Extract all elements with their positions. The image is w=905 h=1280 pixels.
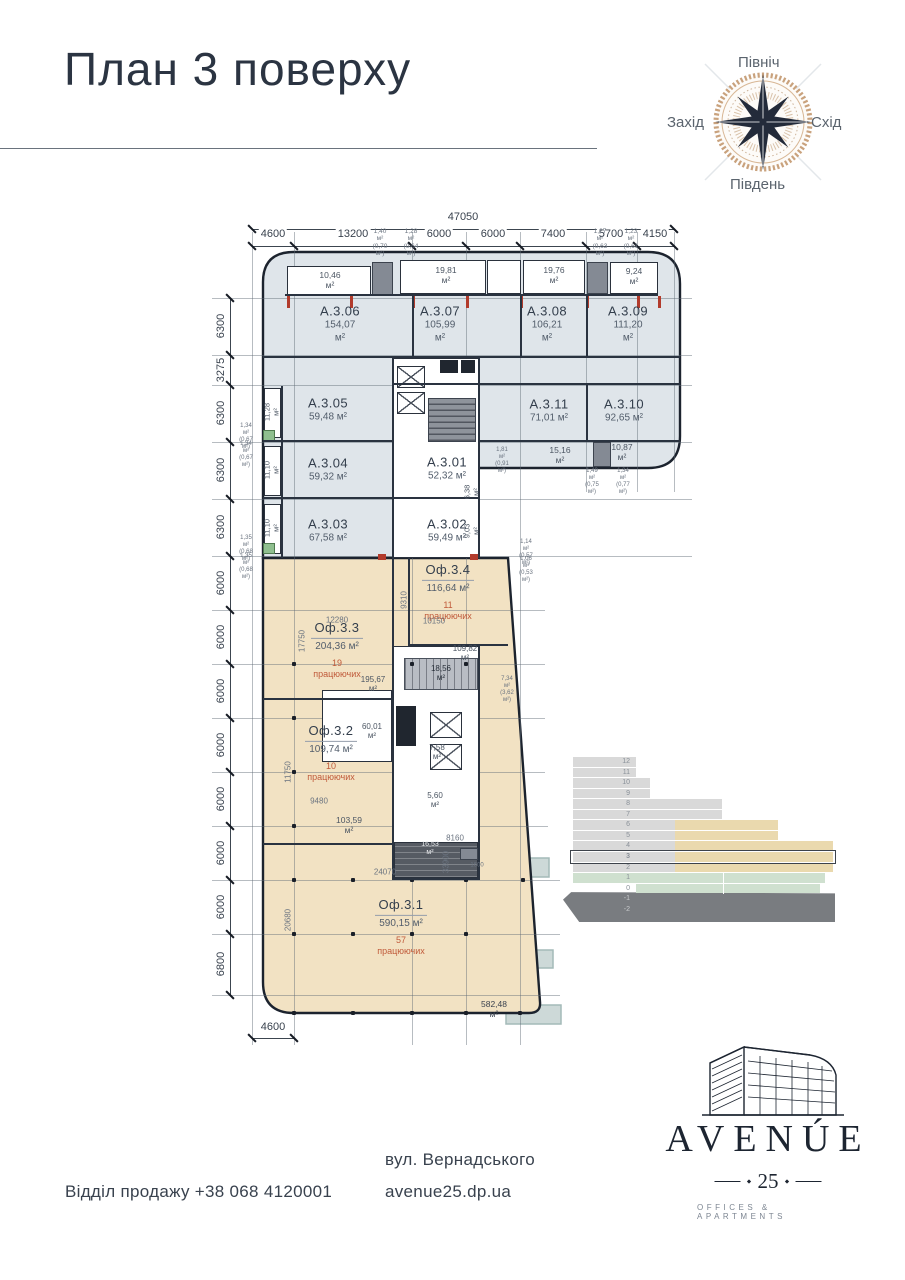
shaft-box [587, 262, 608, 294]
page: План 3 поверху Пів [0, 0, 905, 1280]
stairs-icon [428, 398, 476, 442]
unit-area: 204,36 м² [311, 641, 363, 654]
annotation-v903: 9,03 м² [463, 524, 480, 539]
column-dot [410, 662, 414, 666]
column-dot [292, 716, 296, 720]
annotation-t123: 1,23 м² (0,61 м²) [624, 228, 639, 258]
dim-label-left: 6000 [215, 785, 227, 813]
annotation-t106: 1,06 м² (0,53 м²) [519, 556, 533, 584]
grid-line-horizontal [212, 664, 545, 665]
column-dot [351, 878, 355, 882]
unit-area: 109,74 м² [305, 744, 357, 757]
dim-label-left: 3275 [215, 356, 227, 384]
column-dot [292, 878, 296, 882]
dim-label-left: 6000 [215, 623, 227, 651]
wall-marker [470, 554, 478, 560]
elevator-icon [397, 366, 425, 388]
wall [480, 440, 680, 442]
column-dot [292, 1011, 296, 1015]
unit-workers: 10 працюючих [305, 761, 357, 784]
unit-a306[interactable]: А.3.06154,07 м² [320, 303, 360, 344]
column-dot [292, 770, 296, 774]
annotation-r758: 7,58 м² [429, 743, 445, 761]
elevation-floor-bar [675, 820, 778, 830]
wall [392, 356, 394, 558]
unit-of34[interactable]: Оф.3.4116,64 м²11 працюючих [422, 562, 474, 622]
column-dot [410, 1011, 414, 1015]
logo-name: AVENÚE [665, 1117, 870, 1161]
annotation-d12280: 12280 [326, 615, 348, 624]
unit-area: 67,58 м² [308, 533, 348, 546]
shaft-box [460, 848, 478, 860]
unit-name: Оф.3.4 [422, 562, 474, 578]
unit-area: 52,32 м² [427, 471, 467, 484]
column-dot [292, 662, 296, 666]
wall [392, 878, 480, 880]
elevation-floor-bar [675, 863, 833, 873]
dim-label-left: 6000 [215, 839, 227, 867]
sales-phone[interactable]: Відділ продажу +38 068 4120001 [65, 1182, 332, 1202]
elevation-floor-number: 12 [612, 757, 630, 767]
grid-line-vertical [674, 232, 675, 492]
duct-box [440, 360, 458, 373]
annotation-r560: 5,60 м² [427, 791, 443, 809]
annotation-r1653: 16,53 м² [421, 841, 439, 857]
column-dot [464, 1011, 468, 1015]
dim-label-left: 6300 [215, 399, 227, 427]
annotation-s1516: 15,16 м² [549, 446, 570, 466]
logo-dot-right [785, 1179, 789, 1183]
wall [586, 296, 588, 358]
logo-number: 25 [715, 1169, 822, 1194]
dim-label-left: 6300 [215, 456, 227, 484]
elevation-floor-number: 7 [612, 810, 630, 820]
elevation-floor-number: 11 [612, 768, 630, 778]
unit-divider [375, 915, 427, 916]
annotation-v638: 6,38 м² [463, 485, 480, 500]
logo-building-icon [672, 1035, 862, 1120]
duct-box [461, 360, 475, 373]
annotation-s1087: 10,87 м² [611, 443, 632, 463]
elevation-floor-bar [573, 799, 722, 809]
annotation-r10359: 103,59 м² [336, 816, 362, 836]
elevation-floor-bar [573, 810, 722, 820]
wall [478, 644, 480, 880]
unit-a303[interactable]: А.3.0367,58 м² [308, 517, 348, 546]
unit-a310[interactable]: А.3.1092,65 м² [604, 397, 644, 426]
unit-workers: 19 працюючих [311, 658, 363, 681]
annotation-d10150: 10150 [423, 616, 445, 625]
elevator-icon [430, 712, 462, 738]
dim-label-left: 6000 [215, 731, 227, 759]
unit-a311[interactable]: А.3.1171,01 м² [529, 397, 568, 426]
annotation-b1976: 19,76 м² [543, 266, 564, 286]
unit-area: 590,15 м² [375, 918, 427, 931]
annotation-t135b: 1,35 м² (0,68 м²) [239, 553, 253, 581]
annotation-t149: 1,49 м² (0,75 м²) [585, 468, 599, 496]
wall [263, 497, 480, 499]
dim-chain-bottom [252, 1038, 294, 1039]
dim-label-bottom: 4600 [259, 1021, 287, 1033]
unit-a302[interactable]: А.3.0259,49 м² [427, 517, 467, 546]
unit-name: А.3.07 [420, 303, 460, 319]
annotation-v1128: 11,28 м² [263, 403, 280, 421]
unit-name: А.3.04 [308, 456, 348, 472]
elevation-floor-number: 8 [612, 799, 630, 809]
unit-divider [305, 741, 357, 742]
dim-label-top: 7400 [539, 228, 567, 240]
unit-a307[interactable]: А.3.07105,99 м² [420, 303, 460, 344]
wall [263, 698, 392, 700]
wall [263, 843, 392, 845]
unit-name: Оф.3.2 [305, 723, 357, 739]
unit-name: А.3.11 [529, 397, 568, 413]
annotation-r19567: 195,67 м² [361, 675, 385, 693]
annotation-d17750: 17750 [297, 630, 306, 652]
wall [586, 385, 588, 442]
annotation-d9310: 9310 [399, 591, 408, 609]
unit-name: Оф.3.1 [375, 897, 427, 913]
wall-marker [658, 296, 661, 308]
loggia-door-box [263, 543, 275, 554]
balcony-box [487, 260, 521, 294]
unit-workers: 57 працюючих [375, 935, 427, 958]
unit-area: 59,48 м² [308, 412, 348, 425]
dim-label-left: 6300 [215, 312, 227, 340]
annotation-r6001: 60,01 м² [362, 722, 382, 740]
elevation-floor-number: -1 [612, 894, 630, 904]
dim-chain-left [230, 298, 231, 995]
elevation-basement [563, 892, 835, 922]
wall [285, 294, 658, 296]
unit-area: 59,32 м² [308, 472, 348, 485]
elevation-floor-number: 0 [612, 884, 630, 894]
wall-marker [287, 296, 290, 308]
unit-a301[interactable]: А.3.0152,32 м² [427, 455, 467, 484]
annotation-d33900: 33900 [441, 851, 450, 873]
elevation-floor-bar [675, 831, 778, 841]
grid-line-vertical [466, 232, 467, 1045]
unit-a308[interactable]: А.3.08106,21 м² [527, 303, 567, 344]
annotation-b924: 9,24 м² [626, 267, 643, 287]
dim-label-top: 6000 [479, 228, 507, 240]
column-dot [351, 932, 355, 936]
unit-of32[interactable]: Оф.3.2109,74 м²10 працюючих [305, 723, 357, 783]
grid-line-vertical [252, 232, 253, 1045]
dim-label-total: 47050 [446, 211, 481, 223]
dim-label-left: 6800 [215, 950, 227, 978]
elevation-floor-number: 6 [612, 820, 630, 830]
elevation-floor-number: 1 [612, 873, 630, 883]
annotation-d20680: 20680 [283, 909, 292, 931]
grid-line-horizontal [212, 826, 548, 827]
unit-divider [422, 580, 474, 581]
unit-name: А.3.03 [308, 517, 348, 533]
unit-area: 154,07 м² [320, 320, 360, 345]
annotation-d1600: 1600 [470, 863, 483, 870]
unit-area: 59,49 м² [427, 533, 467, 546]
unit-name: А.3.06 [320, 303, 360, 319]
wall [412, 296, 414, 358]
dim-label-left: 6300 [215, 513, 227, 541]
annotation-r10982: 109,82 м² [453, 644, 477, 662]
unit-area: 105,99 м² [420, 320, 460, 345]
column-dot [518, 1011, 522, 1015]
annotation-t134c: 1,34 м² (0,77 м²) [616, 468, 630, 496]
unit-area: 71,01 м² [529, 413, 568, 426]
annotation-d24070: 24070 [374, 867, 396, 876]
column-dot [351, 1011, 355, 1015]
elevation-floor-number: 5 [612, 831, 630, 841]
dim-label-top: 4600 [259, 228, 287, 240]
annotation-v1110a: 11,10 м² [263, 461, 280, 479]
annotation-d9480: 9480 [310, 796, 328, 805]
elevation-floor-bar [573, 873, 825, 883]
grid-line-horizontal [212, 610, 545, 611]
unit-a309[interactable]: А.3.09111,20 м² [608, 303, 648, 344]
elevator-icon [397, 392, 425, 414]
wall-marker [378, 554, 386, 560]
shaft-box [593, 442, 611, 467]
dim-label-top: 13200 [336, 228, 371, 240]
column-dot [464, 662, 468, 666]
unit-name: А.3.02 [427, 517, 467, 533]
wall [392, 383, 680, 385]
unit-a305[interactable]: А.3.0559,48 м² [308, 396, 348, 425]
column-dot [464, 932, 468, 936]
elevation-floor-number: 2 [612, 863, 630, 873]
street-address: вул. Вернадського [385, 1150, 535, 1170]
wall [263, 356, 680, 358]
elevation-floor-number: -2 [612, 905, 630, 915]
unit-divider [311, 638, 363, 639]
logo: AVENÚE 25 OFFICES & APARTMENTS [620, 1035, 905, 1235]
grid-line-horizontal [212, 880, 560, 881]
annotation-r1856: 18,56 м² [431, 664, 451, 682]
column-dot [292, 824, 296, 828]
annotation-t134b: 1,34 м² (0,67 м²) [239, 441, 253, 469]
shaft-box [372, 262, 393, 295]
annotation-b1981: 19,81 м² [435, 266, 456, 286]
annotation-t128: 1,28 м² (0,64 м²) [404, 228, 419, 258]
elevation-floor-number: 10 [612, 778, 630, 788]
dim-label-left: 6000 [215, 677, 227, 705]
unit-of33[interactable]: Оф.3.3204,36 м²19 працюючих [311, 620, 363, 680]
column-dot [292, 932, 296, 936]
dim-chain-top [252, 246, 674, 247]
logo-dot-left [747, 1179, 751, 1183]
logo-dash-right [796, 1181, 822, 1182]
dim-label-left: 6000 [215, 569, 227, 597]
duct-box [396, 706, 416, 746]
annotation-b1046: 10,46 м² [319, 271, 340, 291]
wall [392, 558, 394, 880]
wall [281, 386, 283, 558]
elevation-floor-bar [636, 884, 820, 894]
annotation-d8160: 8160 [446, 833, 464, 842]
unit-name: А.3.08 [527, 303, 567, 319]
dim-label-top: 6000 [425, 228, 453, 240]
grid-line-horizontal [212, 772, 545, 773]
annotation-r58248: 582,48 м² [481, 1000, 507, 1020]
unit-area: 111,20 м² [608, 320, 648, 345]
unit-name: А.3.05 [308, 396, 348, 412]
logo-tagline: OFFICES & APARTMENTS [697, 1203, 839, 1221]
wall-marker [466, 296, 469, 308]
annotation-d11750: 11750 [283, 761, 292, 783]
elevation-green-divider [723, 873, 724, 894]
dim-label-left: 6000 [215, 893, 227, 921]
unit-of31[interactable]: Оф.3.1590,15 м²57 працюючих [375, 897, 427, 957]
annotation-t127: 1,27 м² (0,63 м²) [593, 228, 608, 258]
elevation-highlight-floor-3[interactable] [570, 850, 836, 864]
logo-number-text: 25 [758, 1169, 779, 1194]
dim-label-top: 4150 [641, 228, 669, 240]
grid-line-vertical [294, 232, 295, 1045]
elevation-floor-number: 9 [612, 789, 630, 799]
unit-name: А.3.10 [604, 397, 644, 413]
unit-name: А.3.01 [427, 455, 467, 471]
unit-area: 116,64 м² [422, 583, 474, 596]
unit-area: 106,21 м² [527, 320, 567, 345]
website-link[interactable]: avenue25.dp.ua [385, 1182, 511, 1202]
grid-line-horizontal [212, 995, 560, 996]
annotation-v1110b: 11,10 м² [263, 519, 280, 537]
annotation-t140: 1,40 м² (0,70 м²) [373, 228, 388, 258]
annotation-t734: 7,34 м² (3,62 м²) [500, 676, 514, 704]
grid-line-horizontal [212, 298, 692, 299]
wall [520, 296, 522, 358]
logo-dash-left [715, 1181, 741, 1182]
column-dot [521, 878, 525, 882]
unit-area: 92,65 м² [604, 413, 644, 426]
annotation-t181: 1,81 м² (0,91 м²) [495, 447, 509, 475]
unit-a304[interactable]: А.3.0459,32 м² [308, 456, 348, 485]
unit-name: А.3.09 [608, 303, 648, 319]
